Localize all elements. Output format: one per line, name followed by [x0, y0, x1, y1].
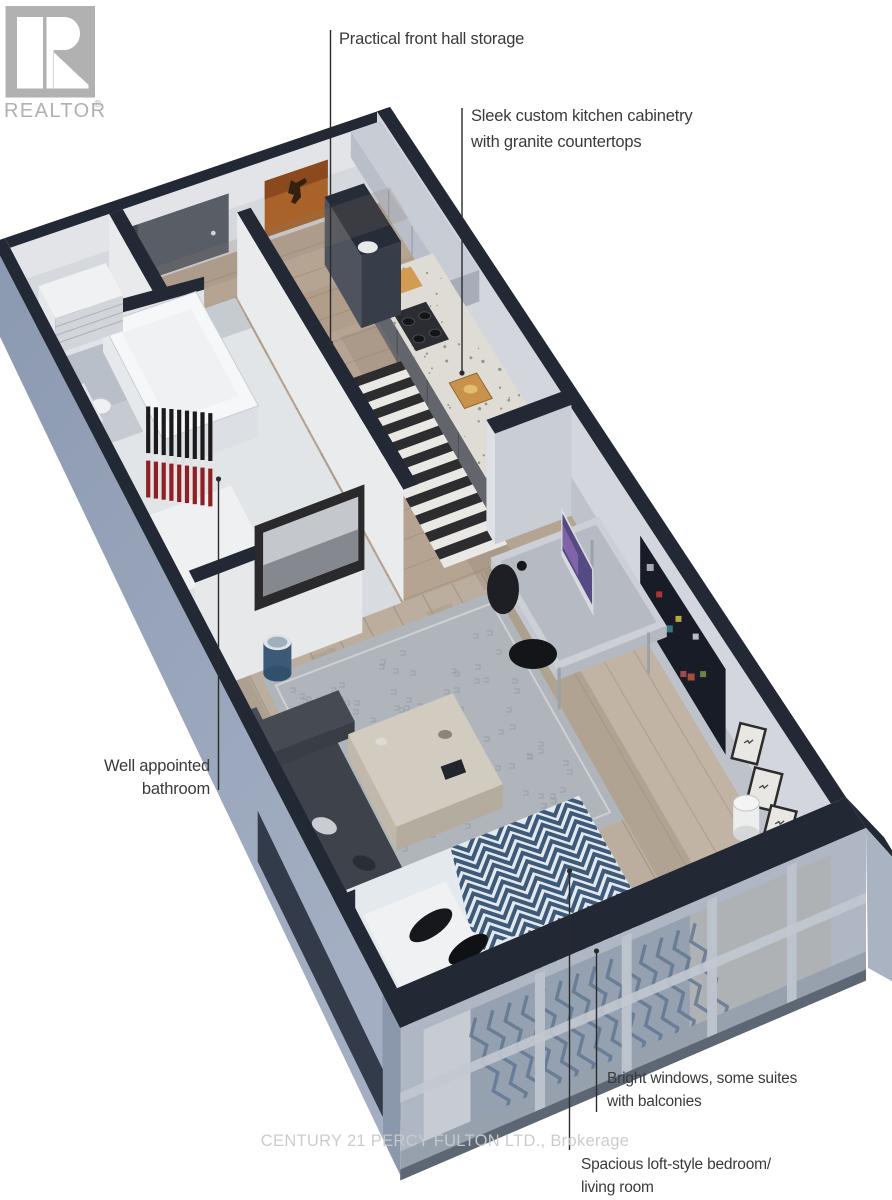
svg-text:Spacious loft-style bedroom/: Spacious loft-style bedroom/: [581, 1156, 772, 1173]
svg-text:living room: living room: [581, 1179, 654, 1196]
svg-text:Bright windows, some suites: Bright windows, some suites: [607, 1070, 798, 1087]
svg-text:Practical front hall storage: Practical front hall storage: [339, 30, 524, 48]
svg-text:with balconies: with balconies: [606, 1093, 702, 1110]
svg-text:bathroom: bathroom: [142, 780, 210, 798]
svg-text:CENTURY 21 PERCY FULTON LTD.,: CENTURY 21 PERCY FULTON LTD., Brokerage: [261, 1132, 629, 1150]
svg-text:with granite countertops: with granite countertops: [470, 133, 641, 151]
svg-text:Well appointed: Well appointed: [104, 757, 210, 775]
svg-text:REALTOR: REALTOR: [4, 100, 106, 122]
svg-text:Sleek custom kitchen cabinetry: Sleek custom kitchen cabinetry: [471, 107, 693, 125]
svg-text:®: ®: [94, 99, 102, 110]
